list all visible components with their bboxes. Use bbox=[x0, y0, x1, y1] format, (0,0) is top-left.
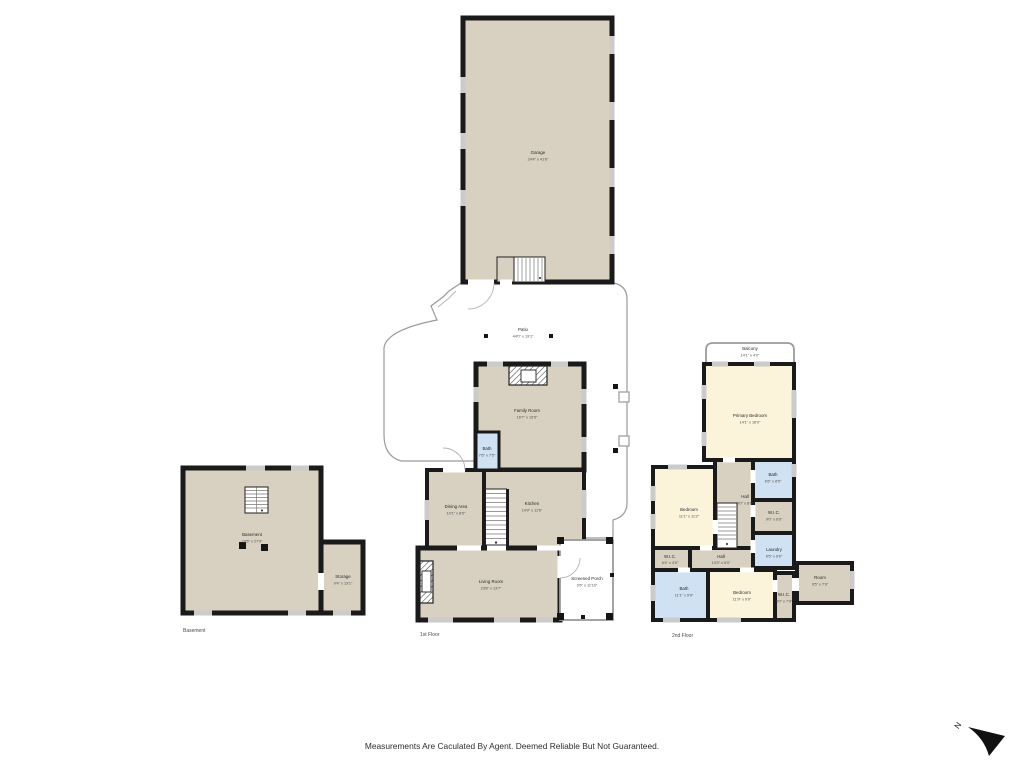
room-dims-room-side: 9'5" x 7'9" bbox=[812, 583, 829, 587]
window bbox=[712, 362, 728, 367]
window bbox=[474, 387, 479, 402]
window bbox=[582, 389, 587, 404]
room-label-patio: Patio bbox=[518, 327, 529, 332]
door-opening bbox=[558, 556, 563, 578]
room-label-wic-left: W.I.C. bbox=[664, 554, 676, 559]
room-dims-bedroom-lower: 11'9" x 9'9" bbox=[733, 598, 752, 602]
door-opening bbox=[678, 568, 690, 573]
door-opening bbox=[751, 470, 756, 483]
window bbox=[288, 611, 306, 616]
room-label-room-side: Room bbox=[814, 575, 826, 580]
room-dims-wic-lower: 4'0" x 7'9" bbox=[776, 600, 793, 604]
room-dims-bath-upper: 6'6" x 8'5" bbox=[765, 480, 782, 484]
patio-post bbox=[484, 334, 488, 338]
room-dims-balcony: 14'1" x 4'0" bbox=[741, 354, 760, 358]
north-arrow-shape bbox=[968, 727, 1005, 756]
room-dims-patio: 44'0" x 19'1" bbox=[513, 335, 534, 339]
wic-left-floor bbox=[653, 548, 690, 570]
room-label-family: Family Room bbox=[514, 408, 540, 413]
room-dims-storage: 9'4" x 13'1" bbox=[334, 582, 353, 586]
window bbox=[425, 500, 430, 520]
window bbox=[536, 618, 553, 623]
room-dims-hall-center: 13'0" x 6'0" bbox=[712, 561, 731, 565]
dining-area-floor bbox=[427, 470, 484, 548]
patio-post bbox=[549, 334, 553, 338]
north-label: N bbox=[953, 720, 964, 730]
floorplan-page: Patio 44'0" x 19'1" Garage 24'4" x 41'6" bbox=[0, 0, 1024, 768]
room-dims-primary: 14'1" x 16'0" bbox=[740, 421, 761, 425]
garage-plan: Garage 24'4" x 41'6" bbox=[461, 18, 615, 309]
support-post bbox=[261, 544, 268, 551]
second-floor-stairs bbox=[717, 503, 737, 548]
bedroom-lower-floor bbox=[708, 570, 775, 620]
room-label-bath-lower: Bath bbox=[679, 586, 689, 591]
room-label-laundry: Laundry bbox=[766, 547, 783, 552]
room-dims-family: 16'7" x 19'5" bbox=[517, 416, 538, 420]
garage-vestibule bbox=[497, 257, 514, 282]
room-label-garage: Garage bbox=[531, 150, 546, 155]
window bbox=[610, 36, 615, 54]
window bbox=[610, 102, 615, 120]
room-label-wic-lower: W.I.C. bbox=[778, 592, 790, 597]
room-dims-laundry: 6'5" x 6'6" bbox=[766, 555, 783, 559]
door-opening bbox=[537, 546, 570, 551]
room-dims-garage: 24'4" x 41'6" bbox=[528, 158, 549, 162]
chimney-flue bbox=[521, 370, 536, 382]
north-arrow: N bbox=[953, 720, 1005, 756]
living-room-floor bbox=[418, 548, 560, 620]
room-label-storage: Storage bbox=[335, 574, 351, 579]
room-label-primary: Primary Bedroom bbox=[733, 413, 768, 418]
door-opening bbox=[468, 280, 494, 285]
door-opening bbox=[457, 546, 481, 551]
window bbox=[291, 466, 309, 471]
window bbox=[792, 390, 797, 418]
floorplan-image: Patio 44'0" x 19'1" Garage 24'4" x 41'6" bbox=[0, 0, 1024, 768]
room-dims-bath1: 7'6" x 7'5" bbox=[479, 454, 496, 458]
fireplace-box bbox=[422, 571, 431, 592]
room-label-basement: Basement bbox=[242, 532, 263, 537]
room-label-bath1: Bath bbox=[482, 446, 492, 451]
door-opening bbox=[723, 458, 735, 463]
window bbox=[668, 465, 687, 470]
second-floor-plan: Balcony 14'1" x 4'0" Primary Bedroom 14'… bbox=[651, 343, 855, 623]
room-dims-porch: 9'6" x 11'10" bbox=[577, 584, 598, 588]
room-label-wic-right: W.I.C. bbox=[768, 510, 780, 515]
window bbox=[702, 385, 707, 399]
room-dims-wic-right: 9'0" x 6'6" bbox=[766, 518, 783, 522]
door-opening bbox=[713, 520, 718, 534]
window bbox=[717, 618, 741, 623]
window bbox=[333, 611, 351, 616]
room-label-bedroom-left: Bedroom bbox=[680, 507, 698, 512]
garage-stairs bbox=[514, 257, 545, 282]
floor-caption-first: 1st Floor bbox=[420, 632, 440, 638]
window bbox=[582, 437, 587, 452]
door-opening bbox=[318, 573, 324, 590]
window bbox=[651, 486, 656, 501]
room-dims-bedroom-left: 11'1" x 11'2" bbox=[679, 515, 700, 519]
primary-bedroom-floor bbox=[704, 364, 794, 460]
window bbox=[651, 585, 656, 601]
window bbox=[651, 514, 656, 529]
window bbox=[194, 611, 212, 616]
door-opening bbox=[792, 578, 799, 591]
door-opening bbox=[443, 468, 465, 473]
window bbox=[610, 168, 615, 187]
door-opening bbox=[740, 568, 754, 573]
room-label-porch: Screened Porch bbox=[571, 576, 603, 581]
window bbox=[850, 571, 855, 589]
floor-caption-basement: Basement bbox=[183, 628, 206, 634]
window bbox=[610, 236, 615, 254]
room-dims-wic-left: 6'4" x 4'5" bbox=[662, 561, 679, 565]
room-label-dining: Dining Area bbox=[445, 504, 468, 509]
window bbox=[551, 362, 568, 367]
room-dims-basement: 23'6" x 27'9" bbox=[242, 540, 263, 544]
window bbox=[461, 77, 466, 93]
room-label-bath-upper: Bath bbox=[768, 472, 778, 477]
patio-pillar bbox=[619, 436, 629, 446]
door-opening bbox=[487, 546, 506, 551]
room-label-hall-center: Hall bbox=[717, 554, 725, 559]
room-dims-kitchen: 14'9" x 11'6" bbox=[522, 509, 543, 513]
bath-first-floor bbox=[476, 432, 499, 470]
window bbox=[754, 362, 770, 367]
wic-right-floor bbox=[753, 500, 794, 533]
disclaimer-text: Measurements Are Caculated By Agent. Dee… bbox=[365, 741, 659, 751]
hall-center-floor bbox=[690, 548, 753, 570]
room-label-kitchen: Kitchen bbox=[525, 501, 540, 506]
window bbox=[702, 432, 707, 446]
patio-post bbox=[613, 384, 618, 389]
room-dims-living: 23'8" x 13'7" bbox=[481, 587, 502, 591]
window bbox=[461, 133, 466, 149]
window bbox=[428, 618, 453, 623]
door-opening bbox=[700, 546, 712, 551]
door-opening bbox=[751, 540, 756, 553]
door-opening bbox=[500, 280, 512, 285]
patio-post bbox=[613, 448, 618, 453]
room-label-hall-upper: Hall bbox=[741, 494, 749, 499]
room-dims-bath-lower: 11'1" x 9'9" bbox=[675, 594, 694, 598]
room-label-living: Living Room bbox=[479, 579, 504, 584]
door-opening bbox=[773, 580, 778, 592]
patio-pillar bbox=[619, 392, 629, 402]
room-dims-hall-upper: 3'0" x 6'8" bbox=[737, 502, 754, 506]
window bbox=[487, 362, 503, 367]
window bbox=[494, 618, 520, 623]
door-opening bbox=[751, 505, 756, 517]
window bbox=[792, 464, 797, 477]
window bbox=[582, 490, 587, 518]
basement-stairs bbox=[245, 487, 268, 513]
room-label-balcony: Balcony bbox=[742, 346, 758, 351]
basement-plan: Basement 23'6" x 27'9" Storage 9'4" x 13… bbox=[183, 466, 363, 616]
floor-caption-second: 2nd Floor bbox=[672, 633, 693, 639]
window bbox=[663, 618, 680, 623]
window bbox=[461, 190, 466, 206]
window bbox=[246, 466, 265, 471]
room-label-bedroom-lower: Bedroom bbox=[733, 590, 751, 595]
room-dims-dining: 10'1" x 8'5" bbox=[447, 512, 466, 516]
